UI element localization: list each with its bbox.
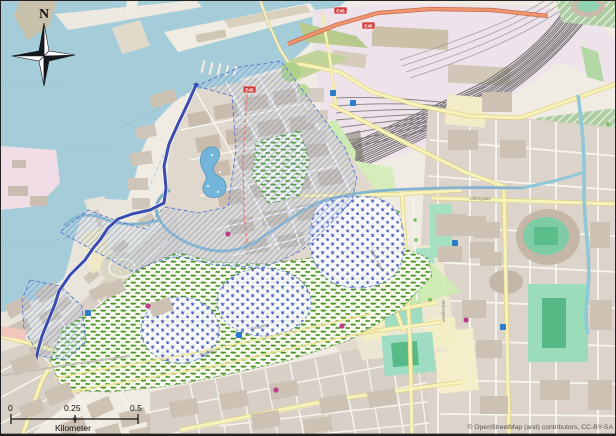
svg-text:E45: E45 xyxy=(336,9,345,14)
svg-text:0.5: 0.5 xyxy=(130,403,142,413)
svg-text:0: 0 xyxy=(8,403,13,413)
svg-text:E45: E45 xyxy=(364,24,373,29)
svg-text:Ullevigatan: Ullevigatan xyxy=(470,196,491,201)
svg-text:Kilometer: Kilometer xyxy=(55,423,91,433)
svg-text:Skånegatan: Skånegatan xyxy=(441,300,447,323)
svg-text:0.25: 0.25 xyxy=(64,403,81,413)
svg-text:© OpenStreetMap (and) contribu: © OpenStreetMap (and) contributors, CC-B… xyxy=(467,423,613,431)
svg-text:E45: E45 xyxy=(245,88,254,93)
svg-text:N: N xyxy=(39,7,49,22)
